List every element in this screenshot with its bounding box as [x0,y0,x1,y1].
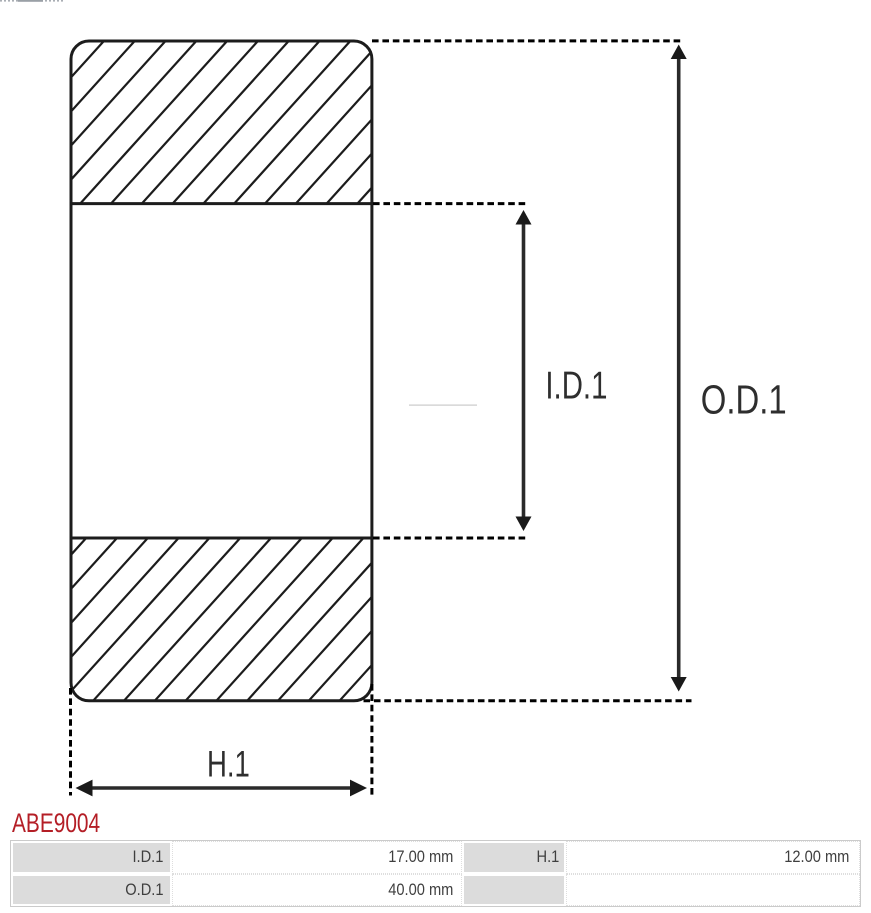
svg-text:H.1: H.1 [207,743,250,784]
svg-text:O.D.1: O.D.1 [701,377,787,422]
svg-text:I.D.1: I.D.1 [545,365,607,408]
